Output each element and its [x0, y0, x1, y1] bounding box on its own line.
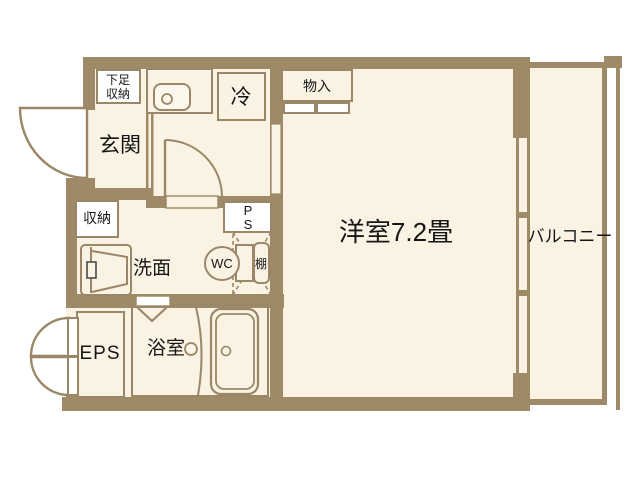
window-line-inner [516, 138, 519, 373]
window-divider-upper [516, 212, 530, 218]
wall-kitchen-bottom-left [146, 196, 168, 208]
wall-window-pier-top [513, 69, 530, 138]
closet-label: 物入 [303, 78, 331, 94]
closet-sliding-panel-right [317, 103, 349, 113]
balcony-label: バルコニー [528, 227, 613, 246]
wall-entry-bottom [95, 188, 153, 200]
entrance-label: 玄関 [99, 134, 141, 157]
shelf-label: 棚 [255, 256, 267, 271]
room-divider-opening [271, 124, 281, 194]
balcony-outer-line [616, 68, 620, 410]
shoe-storage-label-line1: 下足 [106, 73, 130, 87]
entrance-door-arc [20, 108, 87, 178]
washroom-label: 洗面 [133, 257, 171, 279]
wall-window-pier-bottom [513, 373, 530, 411]
bathroom-label: 浴室 [147, 337, 185, 359]
wall-room-divider [270, 69, 283, 411]
floorplan-canvas: 下足 収納 玄関 冷 物入 洋室7.2畳 バルコニー 収納 洗面 P S WC … [0, 0, 640, 480]
wall-bottom [62, 397, 530, 411]
washroom-doorway-threshold [166, 196, 218, 208]
eps-door-arc-upper [31, 318, 69, 356]
eps-door-arc-lower [31, 357, 69, 395]
refrigerator-label: 冷 [231, 86, 252, 109]
pipe-space-label-line1: P [244, 203, 253, 218]
wall-top [83, 57, 530, 69]
shoe-storage-label-line2: 収納 [106, 87, 130, 101]
pipe-space-label-line2: S [244, 217, 253, 232]
window-line-outer [527, 138, 530, 373]
storage-label: 収納 [83, 210, 111, 226]
eps-door-leaf-upper [68, 318, 78, 356]
wall-left-upper [83, 57, 95, 110]
eps-label: EPS [79, 343, 120, 364]
balcony-corner-block [604, 56, 622, 68]
balcony-wall-bottom [530, 399, 607, 405]
toilet-label: WC [211, 256, 233, 271]
bathroom-door-opening [136, 296, 170, 306]
balcony-wall-top [530, 62, 606, 68]
floorplan-drawing: 下足 収納 玄関 冷 物入 洋室7.2畳 バルコニー 収納 洗面 P S WC … [0, 0, 640, 480]
window-divider-lower [516, 290, 530, 296]
main-room-label: 洋室7.2畳 [339, 217, 453, 247]
vanity-faucet-icon [87, 262, 96, 278]
eps-door-leaf-lower [68, 357, 78, 395]
closet-sliding-panel-left [284, 103, 315, 113]
